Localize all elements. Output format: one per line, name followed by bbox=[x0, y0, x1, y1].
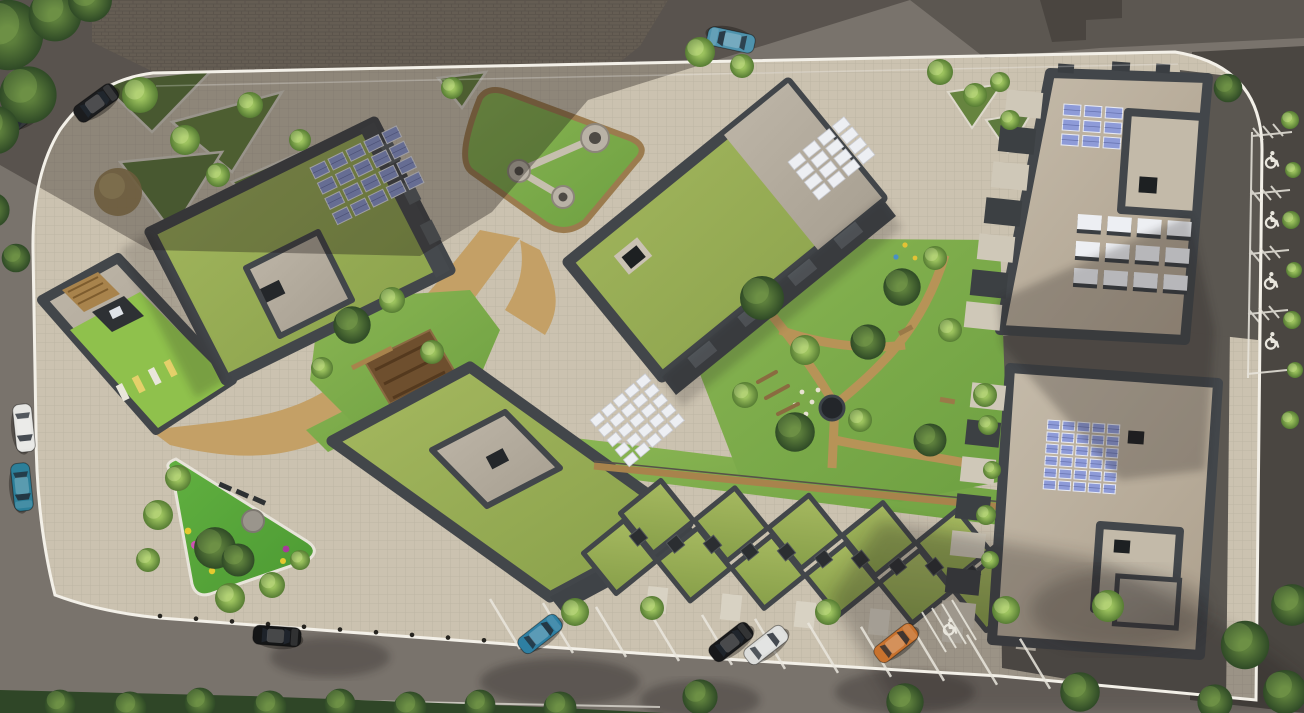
bollard bbox=[194, 616, 199, 621]
circle-pad bbox=[242, 510, 264, 532]
bollard bbox=[158, 614, 163, 619]
bollard bbox=[338, 627, 343, 632]
bollard bbox=[482, 638, 487, 643]
bollard bbox=[230, 619, 235, 624]
pv-northeast-building bbox=[1061, 104, 1123, 149]
bollard bbox=[374, 630, 379, 635]
townhouse-patio bbox=[794, 601, 817, 629]
townhouse-patio bbox=[720, 593, 743, 621]
sunken-trampoline bbox=[820, 396, 844, 420]
bollard bbox=[302, 625, 307, 630]
penthouse-northeast bbox=[1121, 112, 1203, 215]
bollard bbox=[410, 633, 415, 638]
penthouse-southeast-skylight bbox=[1114, 539, 1131, 553]
penthouse-skylight bbox=[1138, 176, 1157, 193]
aerial-site-plan: Top-down aerial rendering of a residenti… bbox=[0, 0, 1304, 713]
bollard bbox=[446, 635, 451, 640]
